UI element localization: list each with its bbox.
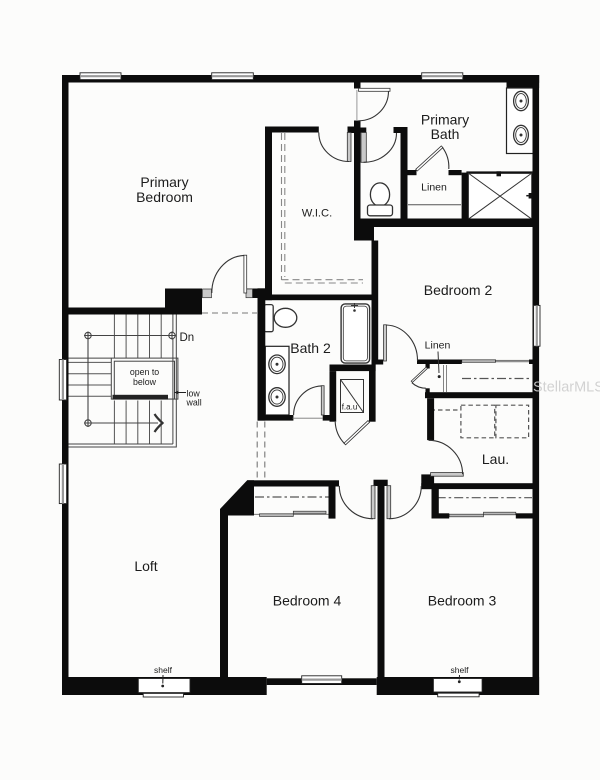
svg-text:shelf: shelf bbox=[451, 665, 470, 675]
svg-text:shelf: shelf bbox=[154, 665, 173, 675]
svg-text:Bedroom: Bedroom bbox=[136, 189, 193, 205]
svg-text:W.I.C.: W.I.C. bbox=[302, 208, 332, 220]
svg-text:Bedroom 3: Bedroom 3 bbox=[428, 593, 497, 609]
svg-text:wall: wall bbox=[186, 398, 202, 408]
svg-text:Primary: Primary bbox=[140, 174, 188, 190]
svg-text:Linen: Linen bbox=[421, 182, 447, 194]
svg-text:Dn: Dn bbox=[180, 332, 195, 344]
svg-text:Bedroom 2: Bedroom 2 bbox=[424, 282, 493, 298]
svg-text:Lau.: Lau. bbox=[482, 451, 509, 467]
svg-text:f.a.u: f.a.u bbox=[342, 403, 358, 412]
svg-text:Linen: Linen bbox=[425, 340, 451, 352]
svg-text:below: below bbox=[133, 377, 157, 387]
svg-text:Bath 2: Bath 2 bbox=[290, 340, 331, 356]
svg-text:Bedroom 4: Bedroom 4 bbox=[273, 593, 342, 609]
svg-text:Loft: Loft bbox=[134, 558, 157, 574]
svg-text:open to: open to bbox=[130, 367, 159, 377]
svg-text:StellarMLS: StellarMLS bbox=[533, 380, 600, 396]
svg-text:Bath: Bath bbox=[431, 126, 460, 142]
